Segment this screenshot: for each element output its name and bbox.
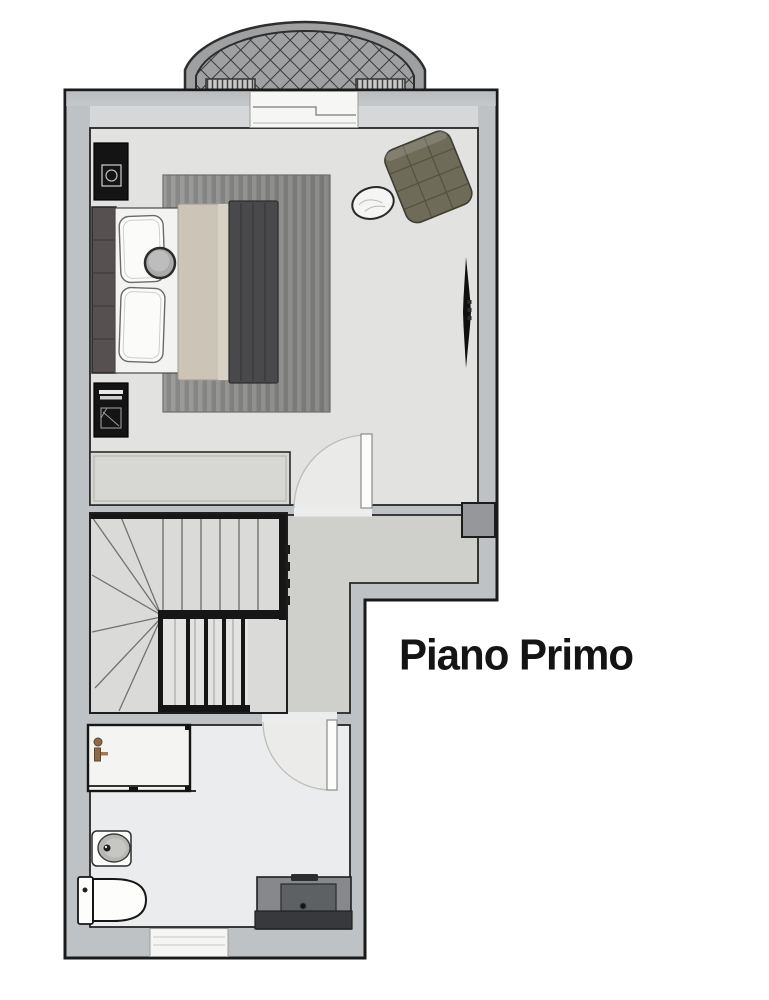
winder-staircase [90,513,290,713]
nightstand-top [94,143,128,200]
stair-inner-stringer [158,610,163,711]
headboard [92,207,116,373]
washbasin [92,831,131,866]
floor-title: Piano Primo [399,630,659,680]
nightstand-bottom [94,383,128,437]
balcony-door [250,92,358,128]
floorplan-page: Piano Primo [0,0,769,1000]
floorplan-svg [0,0,769,1000]
round-cushion-top [149,251,170,272]
baluster-3 [222,619,226,711]
stair-mid-rail [158,610,287,619]
double-bed [92,201,278,383]
baluster-1 [186,619,190,711]
pillow-bottom [119,287,166,362]
wardrobe-cabinet [90,452,290,505]
vanity-handle [291,874,318,881]
stair-bottom-rail [158,705,250,712]
bathroom-window [150,929,228,957]
shower [88,725,196,791]
flush-button [83,888,88,893]
vanity-unit [255,874,352,929]
toilet-tank [78,877,93,924]
bathroom-door-leaf [327,720,337,790]
baluster-4 [241,619,245,711]
wall-box [462,503,495,537]
shower-door-handle [129,787,138,791]
baluster-2 [204,619,208,711]
balcony-trellis [185,22,425,94]
basin-drain [104,845,111,852]
bedroom-door-leaf [361,434,372,508]
vanity-faucet [300,903,306,909]
book-stack-1 [99,390,123,394]
toilet-bowl [93,879,146,921]
toilet [78,877,146,924]
vanity-front-panel [255,911,352,929]
book-stack-2 [100,396,122,400]
